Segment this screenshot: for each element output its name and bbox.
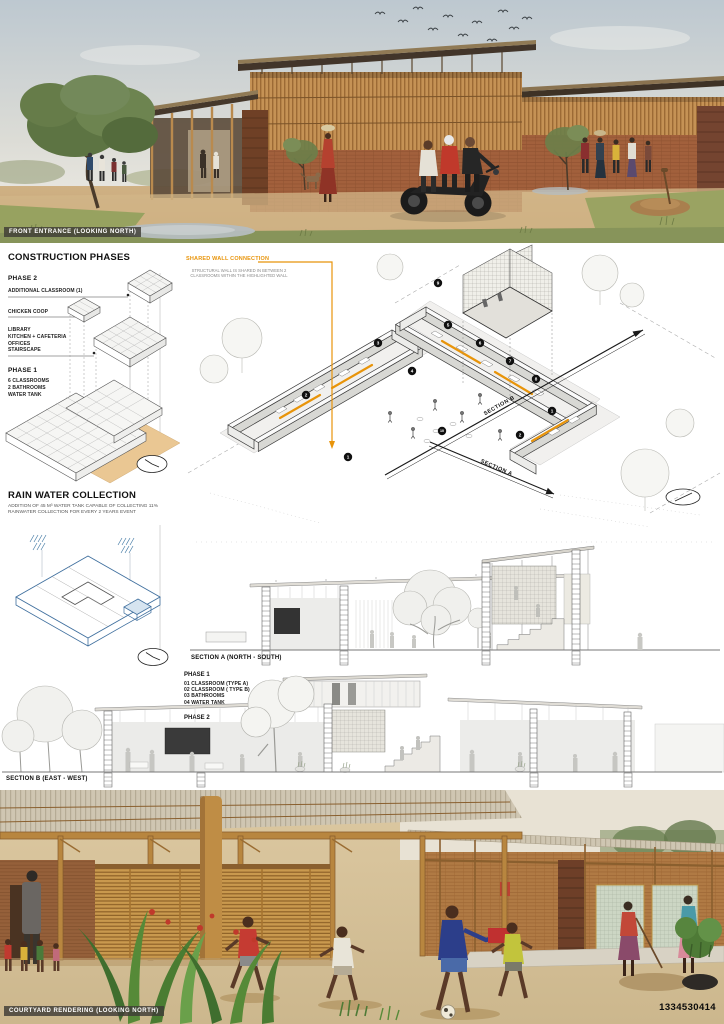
foundations [104, 773, 632, 787]
front-entrance-caption-text: FRONT ENTRANCE (LOOKING NORTH) [9, 229, 136, 235]
section-b-arrow-label: SECTION B [483, 395, 516, 417]
svg-text:3: 3 [377, 341, 380, 346]
section-b-label: SECTION B (EAST - WEST) [6, 776, 88, 782]
construction-phases-diagram [0, 243, 185, 495]
svg-text:7: 7 [509, 359, 512, 364]
library-kitchen-volume [94, 317, 166, 367]
carved-brick-column [558, 860, 584, 958]
courtyard-render: COURTYARD RENDERING (LOOKING NORTH) 1334… [0, 790, 724, 1024]
floor-slabs [220, 301, 620, 465]
courtyard-scene [0, 790, 724, 1024]
clock-icon [138, 649, 168, 666]
water-tank [124, 599, 151, 621]
svg-text:2: 2 [519, 433, 522, 438]
section-b-drawing [0, 664, 724, 788]
section-a-arrow-label: SECTION A [479, 459, 513, 478]
svg-text:8: 8 [535, 377, 538, 382]
front-entrance-render: FRONT ENTRANCE (LOOKING NORTH) [0, 0, 724, 243]
section-a-label: SECTION A (NORTH - SOUTH) [191, 655, 282, 661]
dirt-mound [619, 973, 691, 991]
courtyard-figures [388, 394, 502, 443]
trees-left [2, 686, 102, 752]
shared-wall-caption: STRUCTURAL WALL IS SHARED IN BETWEEN 2 C… [186, 268, 292, 279]
rain-water-title: RAIN WATER COLLECTION [8, 490, 136, 501]
axonometric-plan: SECTION B SECTION A 1 2 1 2 3 4 5 6 7 8 … [180, 243, 724, 540]
background-building [655, 724, 724, 772]
courtyard-caption: COURTYARD RENDERING (LOOKING NORTH) [4, 1006, 164, 1016]
rain-hatch-left [30, 535, 46, 550]
entrance-brick-pier [242, 110, 268, 205]
ellipse-clock-icon [666, 489, 700, 505]
chalkboard [165, 728, 210, 754]
sketch-trees [200, 254, 694, 511]
chalkboard [274, 608, 300, 634]
shared-wall-title: SHARED WALL CONNECTION [186, 256, 269, 262]
svg-text:1: 1 [347, 455, 350, 460]
svg-text:2: 2 [305, 393, 308, 398]
clock-icon [137, 456, 167, 473]
stairs [385, 736, 440, 772]
rain-water-diagram [0, 525, 185, 675]
svg-text:4: 4 [411, 369, 414, 374]
foundations [262, 651, 580, 665]
ground-texture [210, 493, 700, 527]
presentation-board: FRONT ENTRANCE (LOOKING NORTH) CONSTRUCT… [0, 0, 724, 1024]
svg-text:1: 1 [551, 409, 554, 414]
front-entrance-scene [0, 0, 724, 243]
drawings-panel: CONSTRUCTION PHASES PHASE 2 ADDITIONAL C… [0, 243, 724, 790]
svg-text:10: 10 [440, 429, 444, 433]
front-entrance-caption: FRONT ENTRANCE (LOOKING NORTH) [4, 227, 141, 237]
section-a-drawing [186, 538, 724, 670]
puddle-small [532, 187, 588, 195]
classroom-right-section [448, 698, 642, 772]
svg-text:5: 5 [447, 323, 450, 328]
svg-text:9: 9 [437, 281, 440, 286]
football [441, 1005, 455, 1019]
chicken-coop-volume [68, 298, 100, 322]
courtyard-caption-text: COURTYARD RENDERING (LOOKING NORTH) [9, 1008, 159, 1014]
figure-right [638, 633, 643, 650]
rain-water-body: ADDITION OF 45 M³ WATER TANK CAPABLE OF … [8, 504, 180, 517]
svg-text:6: 6 [479, 341, 482, 346]
additional-classroom-volume [128, 270, 172, 303]
sheet-id-number: 1334530414 [659, 1002, 716, 1013]
rain-hatch-right [118, 538, 134, 553]
